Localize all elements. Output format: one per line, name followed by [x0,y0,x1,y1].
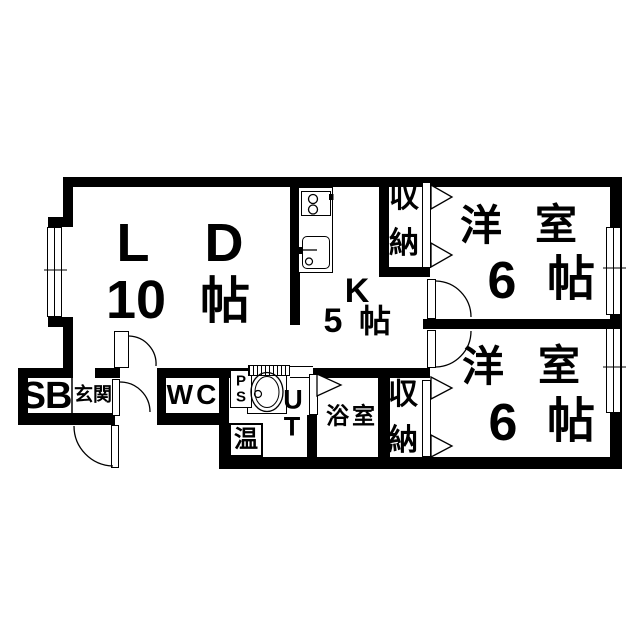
folding-door-icon-bathroom [317,374,341,396]
door-arc-living [129,336,156,366]
bifold-door-icon-closet1-upper [431,185,452,209]
room-label-western1-b: 室 [535,204,577,246]
label-water-heater: 温 [234,428,258,452]
room-size-western1-num: 6 [488,255,517,307]
label-closet2-a: 収 [388,380,418,410]
floorplan-canvas: L D 10 帖 K 5 帖 洋 室 6 帖 洋 室 6 帖 収 納 収 納 S… [0,0,640,640]
label-closet1-a: 収 [389,183,419,213]
bifold-door-icon-closet1-lower [431,243,452,267]
label-closet1-b: 納 [389,229,419,259]
room-size-western1-unit: 帖 [547,256,595,304]
plan-linework [0,0,640,640]
stove-burner-icon [309,195,318,204]
label-utility-t: T [284,414,301,441]
room-size-western2-num: 6 [489,397,518,449]
label-shoe-box: SB [21,377,72,415]
room-label-living-d: D [205,216,244,270]
room-label-western1-a: 洋 [460,205,502,247]
room-label-living-l: L [117,216,150,270]
room-size-kitchen-unit: 帖 [359,305,391,337]
room-size-living-num: 10 [106,273,166,327]
bifold-door-icon-closet2-lower [431,435,452,457]
sink-drain-icon [306,258,313,265]
stove-knob-icon [329,194,334,200]
label-pipe-space-s: S [236,390,246,405]
label-toilet: WC [167,381,220,409]
room-size-kitchen-num: 5 [324,304,343,338]
room-label-western2-b: 室 [538,345,580,387]
bifold-door-icon-closet2-upper [431,377,452,399]
label-pipe-space-p: P [236,374,246,389]
label-utility-u: U [283,387,303,414]
door-arc-hall [120,382,150,412]
door-arc-front-entry [74,426,113,466]
room-size-western2-unit: 帖 [547,398,595,446]
washbasin-bowl-inner [255,377,279,408]
label-closet2-b: 納 [388,426,418,456]
door-arc-western1 [436,281,471,317]
label-entrance: 玄関 [74,386,112,405]
stove-burner-icon [309,205,318,214]
room-size-living-unit: 帖 [200,276,250,326]
label-bathroom: 浴室 [326,405,378,428]
room-label-western2-a: 洋 [462,346,504,388]
sink-faucet-icon [297,247,303,254]
